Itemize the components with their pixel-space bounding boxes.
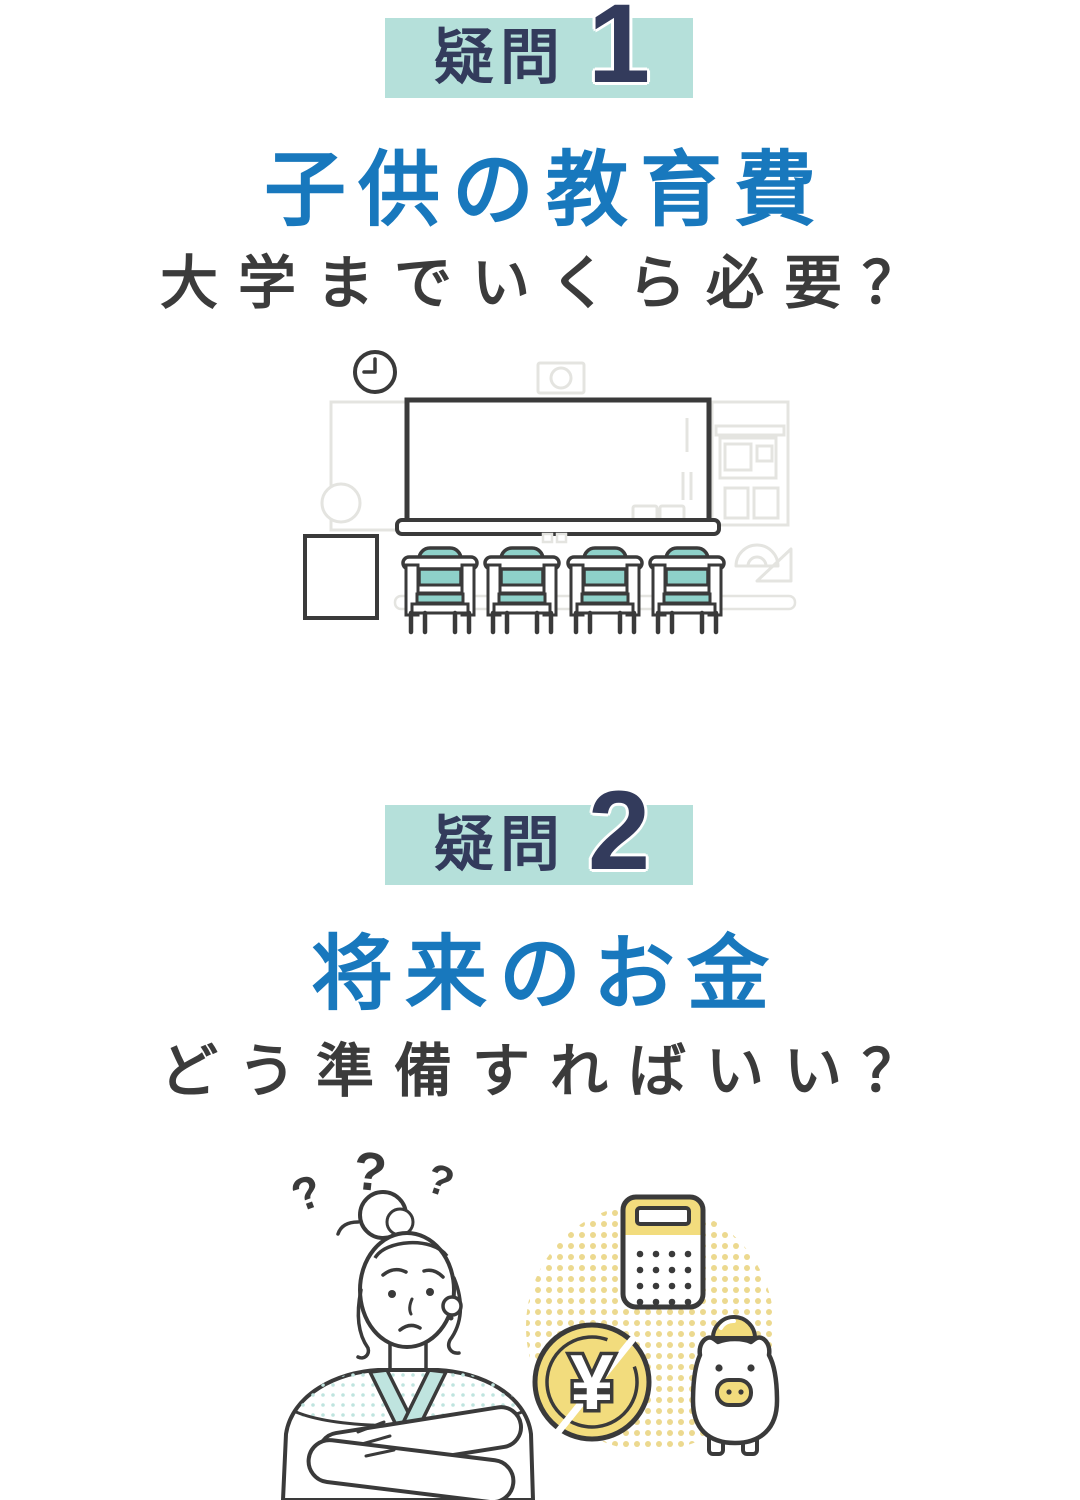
classroom-illustration [295, 340, 800, 640]
yen-symbol: ¥ [570, 1338, 614, 1426]
section-title-education-cost: 子供の教育費 [0, 148, 1080, 234]
student-chairs [403, 548, 724, 632]
globe-icon [322, 484, 360, 522]
section-subtitle-how-much-until-university: 大学までいくら必要？ [0, 252, 1080, 316]
section-subtitle-how-to-prepare: どう準備すればいい？ [0, 1040, 1080, 1104]
podium [305, 536, 377, 618]
clock-icon [355, 352, 395, 392]
speaker-icon [538, 363, 584, 393]
question-badge-2: 疑問 2 [385, 805, 693, 885]
badge-number: 2 [588, 775, 650, 887]
badge-number: 1 [588, 0, 650, 100]
svg-text:?: ? [284, 1164, 328, 1222]
section-title-future-money: 将来のお金 [0, 932, 1080, 1018]
protractor-and-triangle-icon [736, 545, 791, 581]
calculator-icon [623, 1197, 703, 1307]
worried-woman: ? ? ? [283, 1142, 533, 1500]
svg-text:?: ? [421, 1154, 460, 1207]
badge-label: 疑問 [428, 815, 566, 875]
cabinet [712, 402, 788, 525]
question-badge-1: 疑問 1 [385, 18, 693, 98]
yen-coin-icon: ¥ [535, 1325, 649, 1439]
piggy-bank-icon [693, 1317, 777, 1454]
chalk-tray [397, 520, 719, 534]
infographic: 疑問 1 子供の教育費 大学までいくら必要？ [0, 0, 1080, 1500]
badge-label: 疑問 [428, 28, 566, 88]
money-question-illustration: ¥ ? ? ? [280, 1142, 790, 1500]
whiteboard [397, 400, 719, 542]
hair-bun [338, 1192, 413, 1238]
